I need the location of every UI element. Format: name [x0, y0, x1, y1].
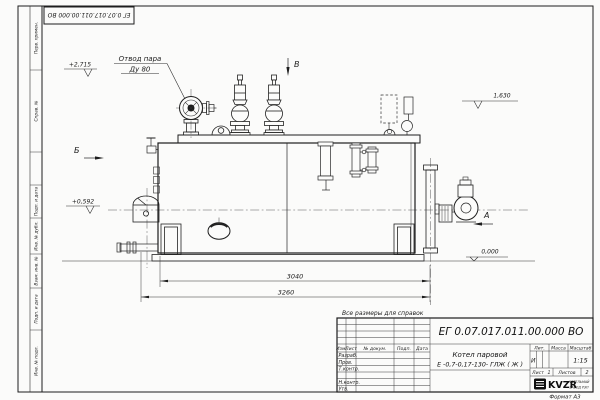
- view-label-a: А: [483, 211, 489, 220]
- water-gauge-1: [318, 142, 333, 190]
- dimension-overall-length: 3260: [141, 252, 430, 302]
- boiler-drawing: Отвод пара Ду 80 Б В А +2,715: [62, 55, 535, 305]
- scale-header: Масштаб: [570, 346, 592, 352]
- lit-header: Лит.: [533, 346, 545, 352]
- blueprint-canvas: Перв. примен. Справ. № Подп. и дата Инв.…: [0, 0, 600, 400]
- col-data: Дата: [415, 346, 428, 352]
- mass-header: Масса: [551, 346, 566, 352]
- callout-steam-outlet: Отвод пара Ду 80: [114, 55, 185, 99]
- burner: [133, 196, 159, 222]
- doc-number: ЕГ 0.07.017.011.00.000 ВО: [439, 326, 584, 338]
- pressure-gauge-phantom: [381, 95, 397, 135]
- elevation-burner-value: +0,592: [72, 199, 94, 206]
- base-skid: [152, 255, 424, 262]
- elevation-burner: +0,592: [66, 199, 100, 214]
- company-line1: КОТЕЛЬНЫЙ: [569, 379, 590, 384]
- flipped-doc-number-box: ЕГ 0.07.017.011.00.000 ВО: [44, 7, 134, 24]
- stamp-podp-data-1: Подп. и дата: [34, 187, 40, 217]
- title-block-right-headers: Лит. Масса Масштаб И 1:15 Лист 1 Листов …: [531, 346, 592, 376]
- flipped-doc-number: ЕГ 0.07.017.011.00.000 ВО: [47, 11, 130, 18]
- company-line2: ЗАВОД РЭП: [570, 386, 590, 390]
- dimension-body-length: 3040: [160, 256, 430, 302]
- lifting-lug: [212, 126, 230, 135]
- stamp-sprav-no: Справ. №: [34, 100, 40, 121]
- stamp-perv-primen: Перв. примен.: [34, 22, 40, 54]
- lit-value: И: [531, 358, 536, 365]
- view-label-b: Б: [74, 146, 80, 155]
- col-ndoc: № докум.: [363, 346, 387, 352]
- reference-note: Все размеры для справок: [342, 310, 424, 317]
- title-block-left-headers: Изм. Лист № докум. Подп. Дата: [336, 346, 428, 352]
- siphon-assembly: [402, 97, 414, 135]
- view-marker-b: Б: [74, 146, 104, 160]
- steam-outlet-valve: [180, 97, 217, 136]
- stamp-podp-data-2: Подп. и дата: [34, 294, 40, 324]
- company-logo-cell: KVZR КОТЕЛЬНЫЙ ЗАВОД РЭП: [534, 379, 590, 392]
- fan-assembly: [435, 177, 478, 222]
- row-tkontr: Т.контр.: [339, 367, 360, 373]
- left-top-valve: [147, 138, 159, 153]
- sheet-frame: Перв. примен. Справ. № Подп. и дата Инв.…: [18, 6, 593, 400]
- callout-steam-line2: Ду 80: [129, 66, 151, 74]
- sheets-label: Листов: [557, 370, 575, 376]
- stamp-inv-dubl: Инв. № дубл.: [34, 221, 40, 250]
- stamp-vzam-inv: Взам. инв. №: [34, 256, 40, 286]
- view-marker-v: В: [286, 58, 299, 76]
- callout-steam-line1: Отвод пара: [119, 55, 162, 63]
- title-block-signature-rows: Разраб. Пров. Т.контр. Н.контр. Утв.: [339, 353, 360, 392]
- product-name-line2: Е -0,7-0,17-130- ГЛЖ ( Ж ): [437, 362, 523, 369]
- stamp-inv-podl: Инв. № подл.: [34, 346, 40, 376]
- dim-overall-length-value: 3260: [278, 289, 295, 297]
- sheets-total: 2: [585, 370, 588, 376]
- elevation-right: 1,630: [462, 93, 518, 109]
- row-nkontr: Н.контр.: [339, 380, 360, 386]
- elevation-ground-value: 0,000: [481, 249, 498, 256]
- sheet-label: Лист: [531, 370, 544, 376]
- elevation-platform-value: +2,715: [69, 62, 91, 69]
- sheet-number: 1: [547, 370, 550, 376]
- elevation-right-value: 1,630: [493, 93, 510, 100]
- left-wall-bolts: [154, 167, 160, 193]
- support-leg-left: [161, 224, 181, 255]
- row-razrab: Разраб.: [339, 353, 358, 359]
- blowdown-pipe: [117, 242, 158, 253]
- top-drum-platform: [178, 135, 420, 143]
- left-stamp-column: Перв. примен. Справ. № Подп. и дата Инв.…: [34, 22, 40, 376]
- drawing-sheet: Перв. примен. Справ. № Подп. и дата Инв.…: [0, 0, 600, 400]
- row-prov: Пров.: [339, 360, 353, 366]
- product-name-line1: Котел паровой: [453, 351, 508, 359]
- elevation-ground: 0,000: [466, 249, 508, 262]
- boiler-shell: [158, 143, 415, 253]
- format-note: Формат А3: [549, 395, 581, 400]
- safety-valve-2: [264, 75, 284, 135]
- dim-body-length-value: 3040: [287, 273, 304, 281]
- elevation-platform: +2,715: [64, 62, 97, 77]
- safety-valve-1: [230, 75, 250, 135]
- row-utv: Утв.: [339, 386, 349, 392]
- callout-leader: [167, 64, 185, 100]
- view-label-v: В: [294, 60, 300, 69]
- water-gauge-2: [350, 143, 378, 177]
- col-podp: Подп.: [397, 346, 411, 352]
- manhole: [208, 218, 230, 240]
- col-list: Лист: [344, 346, 357, 352]
- scale-value: 1:15: [573, 357, 588, 365]
- title-block: Все размеры для справок: [336, 310, 593, 392]
